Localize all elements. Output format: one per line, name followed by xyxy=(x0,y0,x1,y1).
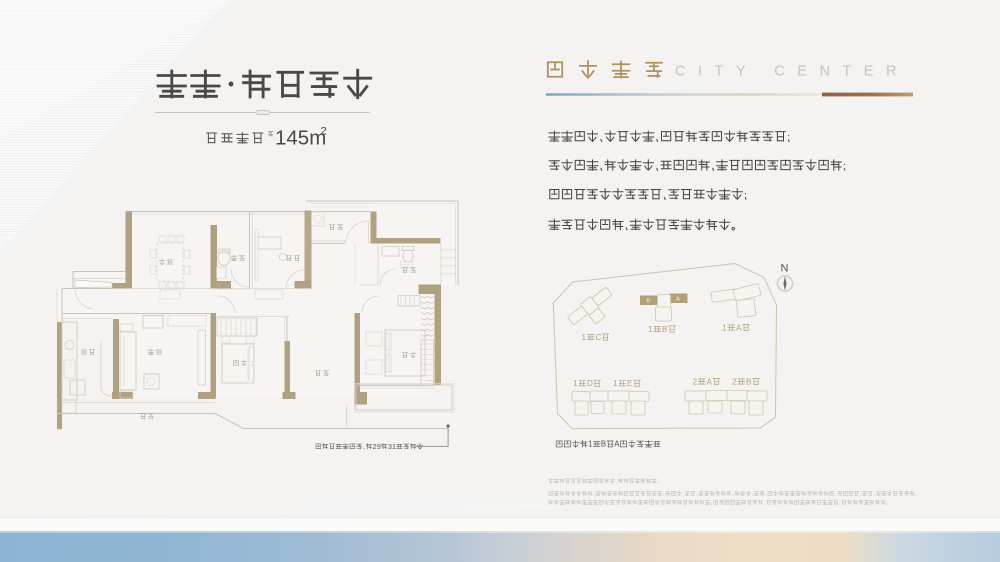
svg-text:1: 1 xyxy=(573,379,578,388)
svg-text:A: A xyxy=(614,440,620,449)
svg-text:1: 1 xyxy=(722,323,727,332)
svg-text:B: B xyxy=(662,325,668,334)
svg-text:A: A xyxy=(707,377,713,386)
svg-text:1: 1 xyxy=(588,440,592,449)
svg-text:2: 2 xyxy=(732,377,737,386)
svg-text:1: 1 xyxy=(392,442,396,451)
svg-text:C: C xyxy=(596,333,602,342)
svg-text:9: 9 xyxy=(377,442,381,451)
svg-text:B: B xyxy=(601,440,606,449)
svg-text:B: B xyxy=(746,377,752,386)
svg-text:145m: 145m xyxy=(275,127,326,150)
svg-text:1: 1 xyxy=(582,333,587,342)
svg-text:D: D xyxy=(587,379,593,388)
svg-text:1: 1 xyxy=(648,325,653,334)
svg-text:B: B xyxy=(647,299,651,305)
svg-text:A: A xyxy=(736,323,742,332)
svg-text:A: A xyxy=(676,297,680,303)
svg-text:CITY CENTER: CITY CENTER xyxy=(675,64,909,80)
svg-text:1: 1 xyxy=(613,379,618,388)
svg-text:2: 2 xyxy=(693,377,698,386)
svg-text:2: 2 xyxy=(321,126,327,138)
svg-text:E: E xyxy=(627,379,633,388)
svg-text:N: N xyxy=(781,263,789,275)
